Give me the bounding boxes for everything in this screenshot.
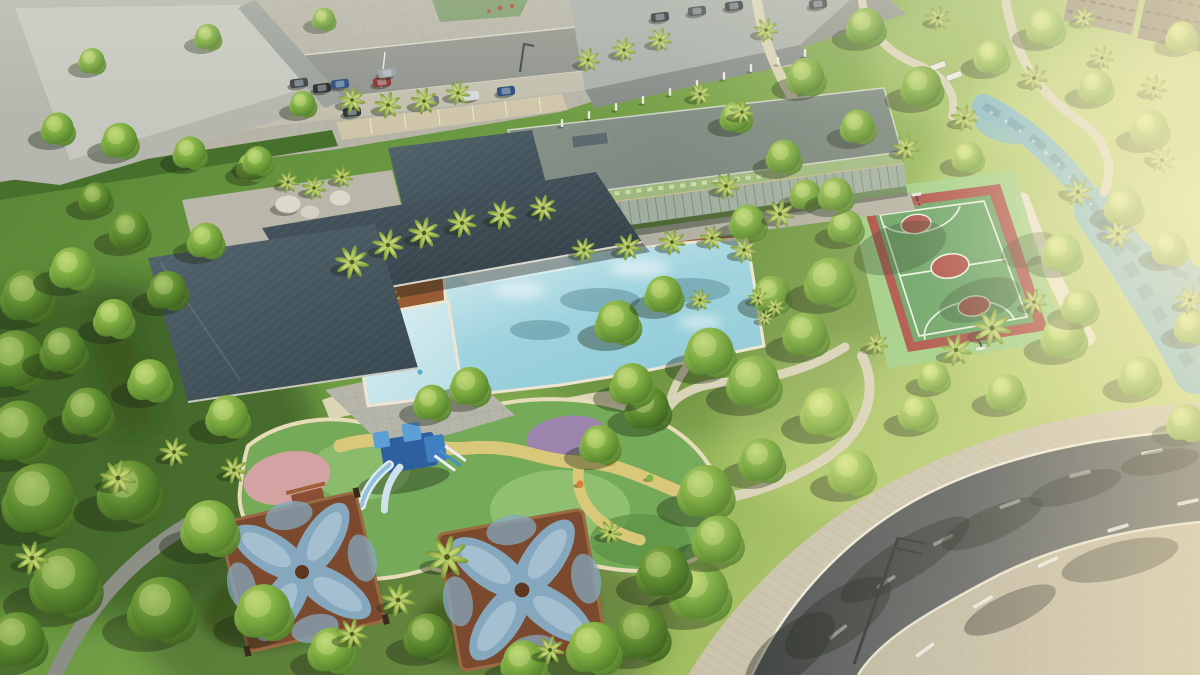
- aerial-community-render: [0, 0, 1200, 675]
- warm-haze-overlay: [0, 0, 1200, 675]
- render-canvas: [0, 0, 1200, 675]
